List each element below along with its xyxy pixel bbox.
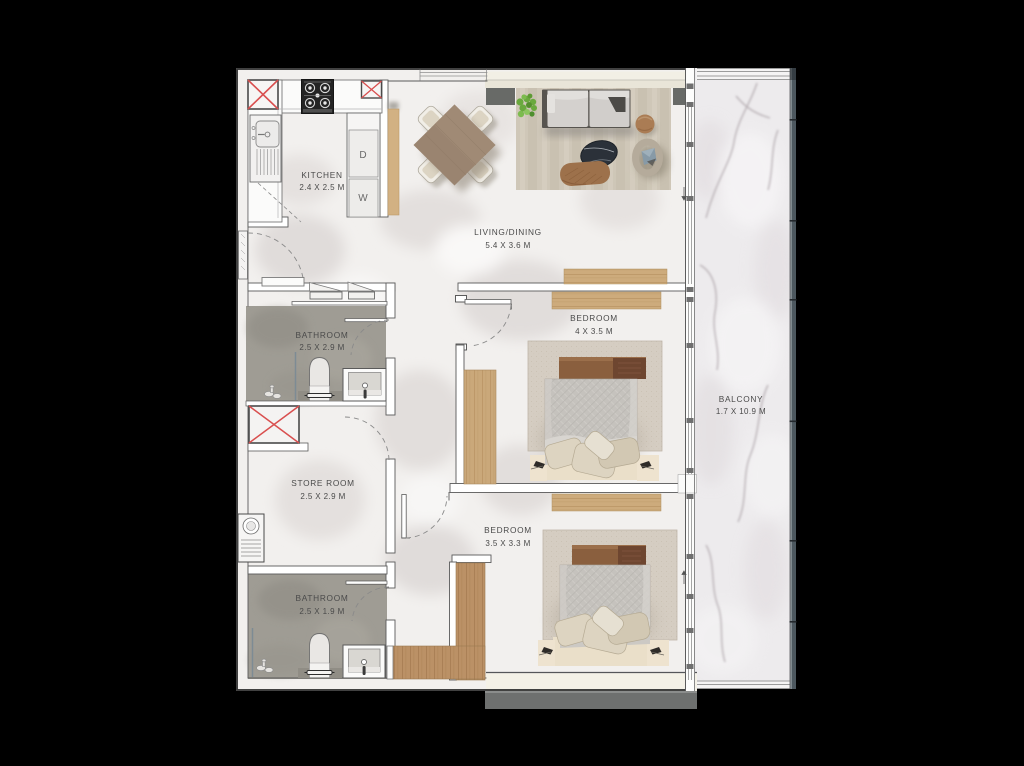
svg-text:2.4 X 2.5 M: 2.4 X 2.5 M	[299, 183, 344, 192]
svg-text:1.7 X 10.9 M: 1.7 X 10.9 M	[716, 407, 766, 416]
svg-text:3.5 X 3.3 M: 3.5 X 3.3 M	[485, 539, 530, 548]
svg-text:LIVING/DINING: LIVING/DINING	[474, 227, 542, 237]
svg-text:D: D	[359, 150, 366, 161]
svg-text:W: W	[358, 193, 368, 204]
svg-text:BALCONY: BALCONY	[719, 394, 764, 404]
svg-text:BEDROOM: BEDROOM	[484, 525, 532, 535]
svg-text:2.5 X 1.9 M: 2.5 X 1.9 M	[299, 607, 344, 616]
svg-text:BATHROOM: BATHROOM	[296, 593, 349, 603]
svg-text:2.5 X 2.9 M: 2.5 X 2.9 M	[300, 492, 345, 501]
svg-text:2.5 X 2.9 M: 2.5 X 2.9 M	[299, 343, 344, 352]
svg-text:5.4 X 3.6 M: 5.4 X 3.6 M	[485, 241, 530, 250]
svg-text:BEDROOM: BEDROOM	[570, 313, 618, 323]
svg-text:4 X 3.5 M: 4 X 3.5 M	[575, 327, 613, 336]
svg-text:KITCHEN: KITCHEN	[301, 170, 342, 180]
svg-text:STORE ROOM: STORE ROOM	[291, 478, 355, 488]
svg-text:BATHROOM: BATHROOM	[296, 330, 349, 340]
